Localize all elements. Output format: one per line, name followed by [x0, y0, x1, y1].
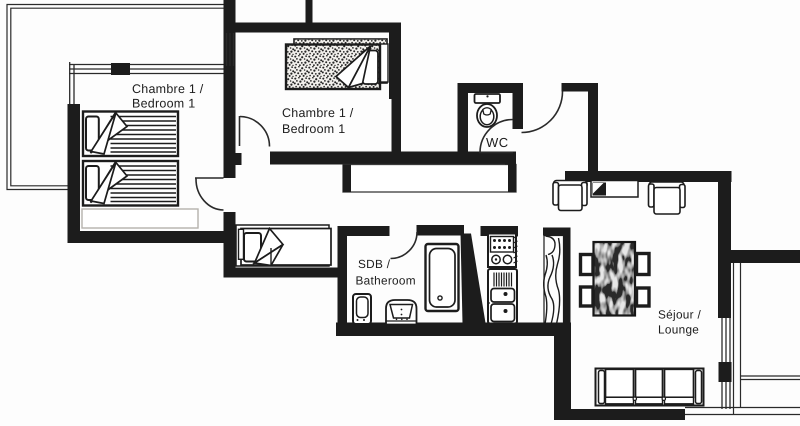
svg-text:WC: WC: [486, 135, 509, 150]
svg-text:Bedroom 1: Bedroom 1: [132, 97, 195, 111]
svg-text:Chambre 1 /: Chambre 1 /: [282, 106, 354, 120]
svg-text:Lounge: Lounge: [658, 323, 699, 337]
svg-text:Séjour /: Séjour /: [658, 308, 701, 322]
svg-text:Bedroom 1: Bedroom 1: [282, 122, 345, 136]
svg-text:Batheroom: Batheroom: [356, 274, 416, 288]
svg-text:SDB /: SDB /: [358, 257, 391, 271]
svg-text:Chambre 1 /: Chambre 1 /: [132, 82, 204, 96]
